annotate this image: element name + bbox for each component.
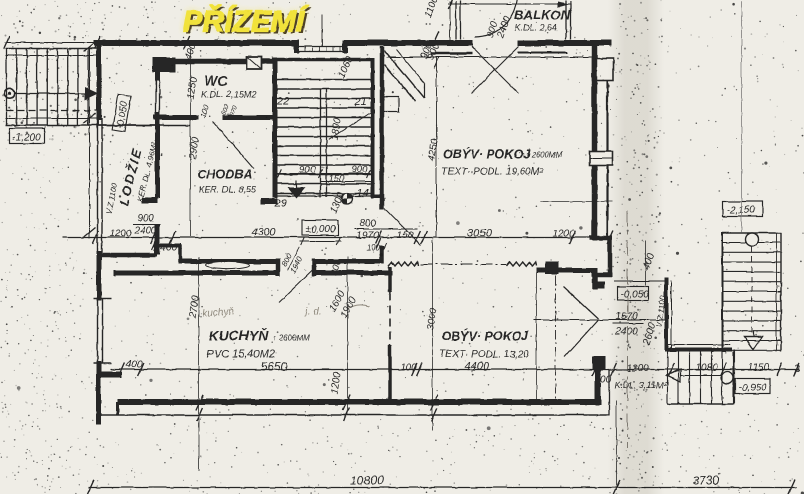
svg-text:OBÝV· POKOJ: OBÝV· POKOJ xyxy=(441,328,529,343)
svg-text:1200: 1200 xyxy=(626,363,649,374)
svg-text:29: 29 xyxy=(273,197,286,209)
svg-text:1150: 1150 xyxy=(747,362,769,373)
svg-text:1200: 1200 xyxy=(552,228,575,239)
svg-text:1200: 1200 xyxy=(109,228,132,239)
svg-text:150: 150 xyxy=(328,173,345,184)
svg-text:900: 900 xyxy=(351,164,368,175)
svg-text:-0,050: -0,050 xyxy=(620,289,649,300)
svg-text:3050: 3050 xyxy=(467,227,492,239)
svg-text:400: 400 xyxy=(125,359,142,370)
svg-text:OBÝV· POKOJ: OBÝV· POKOJ xyxy=(443,146,531,161)
svg-text:1570: 1570 xyxy=(615,311,638,322)
svg-text:±0,000: ±0,000 xyxy=(305,224,336,235)
svg-text:3730: 3730 xyxy=(692,473,719,487)
svg-text:2400: 2400 xyxy=(133,225,157,236)
svg-text:kuchyň: kuchyň xyxy=(201,306,234,319)
svg-text:21: 21 xyxy=(353,96,366,108)
svg-text:TEXT· PODL. 13,20: TEXT· PODL. 13,20 xyxy=(439,349,529,360)
svg-text:-2,150: -2,150 xyxy=(726,205,755,216)
svg-text:14: 14 xyxy=(356,187,368,199)
svg-text:400: 400 xyxy=(594,374,611,385)
svg-text:10800: 10800 xyxy=(350,473,384,487)
svg-text:900: 900 xyxy=(137,213,154,224)
svg-text:4300: 4300 xyxy=(251,226,276,238)
svg-text:400: 400 xyxy=(160,242,177,253)
svg-text:K.DL. 3,11M²: K.DL. 3,11M² xyxy=(614,380,667,390)
svg-text:100: 100 xyxy=(400,362,417,373)
svg-text:KUCHYŇ: KUCHYŇ xyxy=(208,326,269,343)
svg-text:3: 3 xyxy=(794,363,800,374)
svg-text:4400: 4400 xyxy=(464,360,489,372)
svg-text:K.DL. 2,64: K.DL. 2,64 xyxy=(514,22,557,32)
svg-text:100: 100 xyxy=(366,243,380,252)
svg-text:CHODBA: CHODBA xyxy=(197,167,252,181)
svg-text:5650: 5650 xyxy=(260,359,287,373)
svg-text:1080: 1080 xyxy=(695,362,718,373)
svg-text:TEXT· PODL. 19,60M²: TEXT· PODL. 19,60M² xyxy=(441,166,543,177)
svg-text:PŘÍZEMÍ: PŘÍZEMÍ xyxy=(182,4,308,38)
svg-text:KER. DL. 8,55: KER. DL. 8,55 xyxy=(198,184,257,194)
svg-text:-0,950: -0,950 xyxy=(738,382,767,393)
svg-text:22: 22 xyxy=(276,95,289,107)
svg-text:150: 150 xyxy=(396,230,413,241)
svg-text:-1,200: -1,200 xyxy=(12,132,41,143)
svg-text:800: 800 xyxy=(359,218,376,229)
svg-text:2400: 2400 xyxy=(614,326,638,337)
svg-text:WC: WC xyxy=(204,72,228,88)
svg-text:↑↑ 2600MM: ↑↑ 2600MM xyxy=(521,150,563,159)
svg-text:↑ 2600MM: ↑ 2600MM xyxy=(272,333,310,342)
svg-text:K.DL. 2,15M2: K.DL. 2,15M2 xyxy=(201,89,256,99)
svg-text:1970: 1970 xyxy=(356,230,379,241)
svg-text:900: 900 xyxy=(299,164,316,175)
svg-text:j. d.: j. d. xyxy=(303,306,321,317)
svg-text:BALKON: BALKON xyxy=(514,7,570,22)
